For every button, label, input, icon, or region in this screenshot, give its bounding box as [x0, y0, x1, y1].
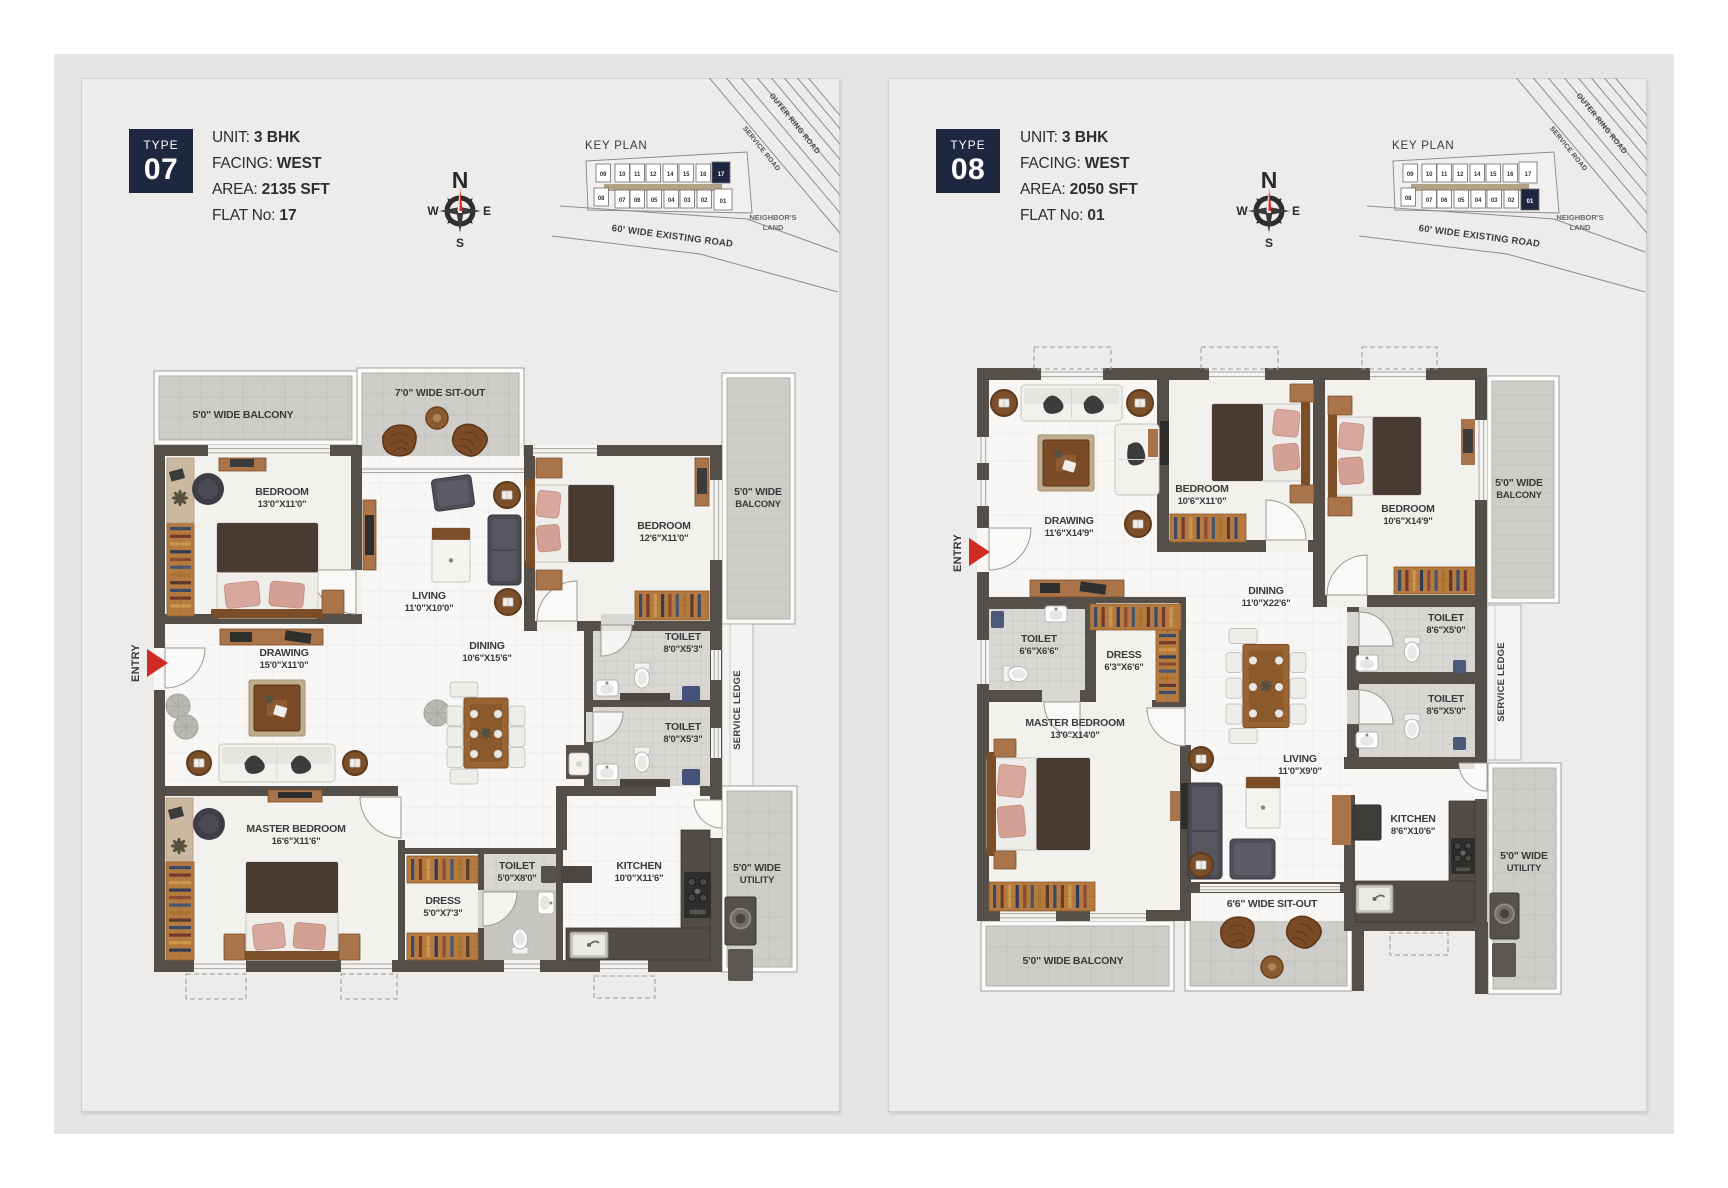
svg-text:UTILITY: UTILITY — [1507, 863, 1542, 874]
svg-text:16'6"X11'6": 16'6"X11'6" — [272, 836, 321, 847]
svg-text:BEDROOM: BEDROOM — [637, 520, 691, 532]
svg-text:16: 16 — [700, 172, 707, 178]
svg-text:10'6"X14'9": 10'6"X14'9" — [1383, 516, 1432, 527]
svg-text:6'6"X6'6": 6'6"X6'6" — [1019, 646, 1058, 657]
svg-text:8'0"X5'3": 8'0"X5'3" — [663, 644, 702, 655]
svg-text:09: 09 — [1407, 172, 1414, 178]
svg-text:OUTER RING ROAD: OUTER RING ROAD — [768, 91, 823, 156]
svg-text:60' WIDE EXISTING ROAD: 60' WIDE EXISTING ROAD — [611, 223, 734, 250]
svg-text:UTILITY: UTILITY — [740, 875, 775, 886]
svg-text:01: 01 — [720, 199, 727, 205]
svg-text:DRAWING: DRAWING — [1044, 515, 1093, 527]
svg-text:SERVICE LEDGE: SERVICE LEDGE — [1496, 642, 1507, 722]
svg-text:02: 02 — [701, 198, 708, 204]
svg-text:5'0" WIDE: 5'0" WIDE — [1500, 850, 1548, 862]
svg-text:TOILET: TOILET — [665, 721, 702, 733]
svg-text:15: 15 — [1490, 172, 1497, 178]
svg-text:DINING: DINING — [1248, 585, 1284, 597]
svg-text:08: 08 — [1405, 196, 1412, 202]
svg-text:05: 05 — [1458, 198, 1465, 204]
svg-text:11'0"X9'0": 11'0"X9'0" — [1278, 766, 1322, 777]
svg-text:BEDROOM: BEDROOM — [1175, 483, 1229, 495]
svg-text:12'6"X11'0": 12'6"X11'0" — [640, 533, 689, 544]
svg-text:5'0" WIDE: 5'0" WIDE — [733, 862, 781, 874]
svg-text:DINING: DINING — [469, 640, 505, 652]
svg-text:TOILET: TOILET — [499, 860, 536, 872]
svg-text:NEIGHBOR'S: NEIGHBOR'S — [1556, 213, 1603, 222]
svg-text:10'6"X11'0": 10'6"X11'0" — [1178, 496, 1227, 507]
svg-text:SERVICE LEDGE: SERVICE LEDGE — [732, 670, 743, 750]
svg-text:TOILET: TOILET — [1428, 612, 1465, 624]
svg-text:15: 15 — [683, 172, 690, 178]
svg-text:5'0" WIDE BALCONY: 5'0" WIDE BALCONY — [193, 409, 294, 421]
svg-text:NEIGHBOR'S: NEIGHBOR'S — [749, 213, 796, 222]
svg-text:04: 04 — [668, 198, 675, 204]
svg-text:OUTER RING ROAD: OUTER RING ROAD — [1575, 91, 1630, 156]
svg-text:TOILET: TOILET — [1428, 693, 1465, 705]
svg-text:KEY PLAN: KEY PLAN — [1392, 140, 1454, 152]
svg-text:8'6"X10'6": 8'6"X10'6" — [1391, 826, 1435, 837]
svg-text:5'0"X8'0": 5'0"X8'0" — [497, 873, 536, 884]
svg-text:KEY PLAN: KEY PLAN — [585, 140, 647, 152]
svg-text:12: 12 — [1457, 172, 1464, 178]
svg-text:06: 06 — [634, 198, 641, 204]
svg-text:BEDROOM: BEDROOM — [1381, 503, 1435, 515]
svg-text:5'0" WIDE: 5'0" WIDE — [1495, 477, 1543, 489]
svg-text:10'0"X11'6": 10'0"X11'6" — [615, 873, 664, 884]
svg-text:11'0"X22'6": 11'0"X22'6" — [1242, 598, 1291, 609]
svg-text:BALCONY: BALCONY — [735, 499, 781, 510]
svg-text:04: 04 — [1475, 198, 1482, 204]
svg-text:W: W — [427, 204, 439, 218]
svg-text:05: 05 — [651, 198, 658, 204]
svg-text:11: 11 — [634, 172, 641, 178]
svg-text:11: 11 — [1441, 172, 1448, 178]
svg-text:6'6" WIDE SIT-OUT: 6'6" WIDE SIT-OUT — [1227, 898, 1318, 910]
svg-text:KITCHEN: KITCHEN — [1390, 813, 1435, 825]
svg-text:S: S — [456, 236, 464, 250]
svg-text:5'0" WIDE: 5'0" WIDE — [734, 486, 782, 498]
svg-text:08: 08 — [598, 196, 605, 202]
svg-text:W: W — [1236, 204, 1248, 218]
svg-text:LAND: LAND — [1570, 223, 1591, 232]
svg-text:5'0"X7'3": 5'0"X7'3" — [423, 908, 462, 919]
svg-text:14: 14 — [1474, 172, 1481, 178]
svg-text:11'0"X10'0": 11'0"X10'0" — [405, 603, 454, 614]
svg-text:03: 03 — [684, 198, 691, 204]
svg-text:TOILET: TOILET — [1021, 633, 1058, 645]
svg-text:02: 02 — [1508, 198, 1515, 204]
svg-text:DRESS: DRESS — [1106, 649, 1141, 661]
svg-text:LIVING: LIVING — [1283, 753, 1317, 765]
svg-text:TOILET: TOILET — [665, 631, 702, 643]
svg-text:LAND: LAND — [763, 223, 784, 232]
svg-text:13'0"X14'0": 13'0"X14'0" — [1050, 730, 1099, 741]
svg-text:17: 17 — [1525, 172, 1532, 178]
svg-text:07: 07 — [619, 198, 626, 204]
svg-text:7'0" WIDE SIT-OUT: 7'0" WIDE SIT-OUT — [395, 387, 486, 399]
svg-text:12: 12 — [650, 172, 657, 178]
svg-text:09: 09 — [600, 172, 607, 178]
svg-text:06: 06 — [1441, 198, 1448, 204]
svg-text:LIVING: LIVING — [412, 590, 446, 602]
svg-text:E: E — [1292, 204, 1300, 218]
svg-text:6'3"X6'6": 6'3"X6'6" — [1104, 662, 1143, 673]
svg-text:ENTRY: ENTRY — [952, 534, 964, 572]
svg-text:BEDROOM: BEDROOM — [255, 486, 309, 498]
svg-text:15'0"X11'0": 15'0"X11'0" — [260, 660, 309, 671]
svg-text:10'6"X15'6": 10'6"X15'6" — [462, 653, 511, 664]
svg-text:8'6"X5'0": 8'6"X5'0" — [1426, 625, 1465, 636]
svg-text:ENTRY: ENTRY — [130, 644, 142, 682]
svg-text:13'0"X11'0": 13'0"X11'0" — [258, 499, 307, 510]
svg-text:16: 16 — [1507, 172, 1514, 178]
svg-text:01: 01 — [1527, 199, 1534, 205]
svg-text:14: 14 — [667, 172, 674, 178]
svg-text:8'0"X5'3": 8'0"X5'3" — [663, 734, 702, 745]
svg-text:03: 03 — [1491, 198, 1498, 204]
svg-text:E: E — [483, 204, 491, 218]
svg-text:10: 10 — [619, 172, 626, 178]
svg-text:MASTER BEDROOM: MASTER BEDROOM — [1025, 717, 1125, 729]
svg-text:5'0" WIDE BALCONY: 5'0" WIDE BALCONY — [1023, 955, 1124, 967]
svg-text:BALCONY: BALCONY — [1496, 490, 1542, 501]
svg-text:DRAWING: DRAWING — [259, 647, 308, 659]
svg-text:60' WIDE EXISTING ROAD: 60' WIDE EXISTING ROAD — [1418, 223, 1541, 250]
svg-text:17: 17 — [718, 172, 725, 178]
svg-text:DRESS: DRESS — [425, 895, 460, 907]
svg-text:10: 10 — [1426, 172, 1433, 178]
svg-text:S: S — [1265, 236, 1273, 250]
svg-text:KITCHEN: KITCHEN — [616, 860, 661, 872]
svg-text:07: 07 — [1426, 198, 1433, 204]
svg-text:8'6"X5'0": 8'6"X5'0" — [1426, 706, 1465, 717]
svg-text:MASTER BEDROOM: MASTER BEDROOM — [246, 823, 346, 835]
svg-text:11'6"X14'9": 11'6"X14'9" — [1045, 528, 1094, 539]
